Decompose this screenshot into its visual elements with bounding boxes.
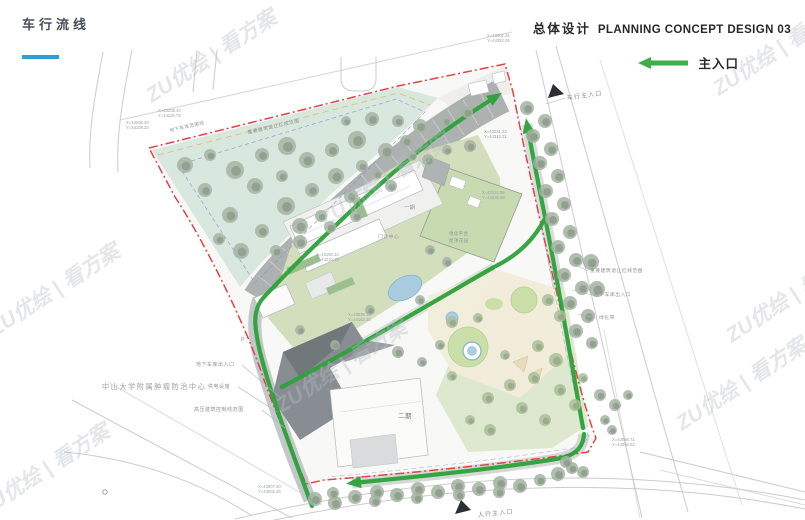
watermark-text: ZU优绘 | 看方案 <box>0 237 126 341</box>
legend-main-entrance: 主入口 <box>638 53 739 72</box>
watermark-text: ZU优绘 | 看方案 <box>708 0 805 101</box>
coordinate-label: Y=44226.78 <box>158 113 181 118</box>
page: 中山大学附属肿瘤防治中心地下车库出入口供电设施高压建筑控制线范围地下车库范围线重… <box>0 0 805 520</box>
entrance-label: 人行主入口 <box>477 507 514 519</box>
watermark-text: ZU优绘 | 看方案 <box>721 243 805 347</box>
watermark-text: ZU优绘 | 看方案 <box>0 417 116 520</box>
legend-label: 主入口 <box>698 53 739 72</box>
plan-label: 地下车库出入口 <box>594 291 631 298</box>
section-title-cn: 总体设计 <box>533 22 591 36</box>
section-title: 总体设计PLANNING CONCEPT DESIGN 03 <box>533 18 791 38</box>
main-entrance-arrow-icon <box>638 55 690 71</box>
coordinate-label: Y=44235.08 <box>482 195 505 200</box>
plan-label: 中山大学附属肿瘤防治中心 <box>102 382 206 391</box>
plan-label: 地下车库出入口 <box>196 361 235 368</box>
entrance-triangle-icon <box>548 84 564 98</box>
plan-label: 供电设施 <box>208 383 230 390</box>
plan-label: 屋顶花园 <box>449 237 469 244</box>
entrance-label: 车行主入口 <box>566 89 603 102</box>
plan-label: 门诊中心 <box>378 233 399 240</box>
watermark-text: ZU优绘 | 看方案 <box>671 331 805 435</box>
plan-label: 绿化平台 <box>449 230 469 237</box>
coordinate-label: Y=44312.21 <box>484 134 507 139</box>
plan-label: 高压建筑控制线范围 <box>194 406 244 413</box>
entrance-triangle-icon <box>455 500 471 514</box>
watermark-text: ZU优绘 | 看方案 <box>141 3 284 107</box>
plan-label: 地下车库范围线 <box>169 119 205 134</box>
page-title: 车行流线 <box>22 14 90 33</box>
section-title-en: PLANNING CONCEPT DESIGN 03 <box>598 24 791 36</box>
site-plan: 中山大学附属肿瘤防治中心地下车库出入口供电设施高压建筑控制线范围地下车库范围线重… <box>0 0 805 520</box>
plan-label: 一期 <box>404 204 415 211</box>
coordinate-label: Y=44210.15 <box>316 257 339 262</box>
coordinate-label: Y=44352.06 <box>487 38 510 43</box>
title-underline <box>22 55 59 59</box>
plan-label: 绿化带 <box>599 314 615 321</box>
coordinate-label: Y=44002.29 <box>258 489 281 494</box>
coordinate-label: Y=44108.33 <box>126 125 149 130</box>
plan-label: P <box>241 337 245 343</box>
coordinate-label: Y=44163.30 <box>348 317 371 322</box>
plan-label: 二期 <box>398 412 412 420</box>
plan-label: 重要建筑退让红线范围 <box>590 267 643 274</box>
coordinate-label: Y=44394.02 <box>612 442 635 447</box>
